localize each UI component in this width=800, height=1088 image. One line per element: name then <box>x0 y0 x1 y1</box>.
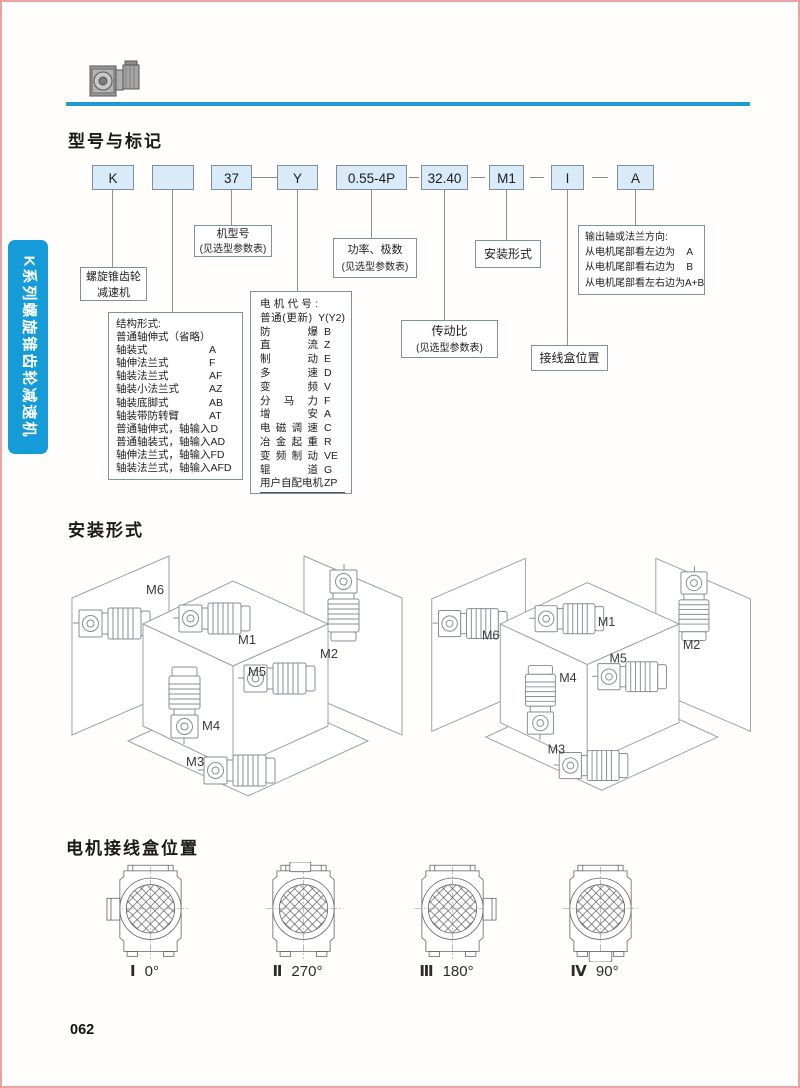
code-box-output-dir: A <box>617 165 654 190</box>
mounting-label-m4: M4 <box>559 671 576 685</box>
annotation-motor-codes: 电机代号: 普通(更新) Y(Y2) 防爆 B 直流 Z <box>250 291 352 494</box>
output-direction-title: 输出轴或法兰方向: <box>585 230 699 245</box>
catalog-page: K系列螺旋锥齿轮减速机 型号与标记 K 37 Y 0.55-4P 32.40 M… <box>0 0 800 1088</box>
annotation-mounting-form: 安装形式 <box>475 240 541 268</box>
motor-code-row: 分马力 F <box>260 395 345 409</box>
annotation-frame-size: 机型号 (见选型参数表) <box>194 225 272 257</box>
terminal-position-label-2: Ⅱ270° <box>253 962 342 980</box>
output-direction-row: 从电机尾部看右边为 B <box>585 260 699 275</box>
motor-rear-view-270deg <box>259 862 348 962</box>
annotation-terminal-position: 接线盒位置 <box>531 345 608 371</box>
motor-code-row: 变频 V <box>260 381 345 395</box>
section-title-terminal-box: 电机接线盒位置 <box>66 834 199 859</box>
series-side-tab: K系列螺旋锥齿轮减速机 <box>8 240 48 454</box>
connector-line <box>444 190 445 320</box>
output-direction-row: 从电机尾部看左右边为 A+B <box>585 276 699 291</box>
mounting-label-m3: M3 <box>186 754 204 769</box>
code-box-terminal-pos: I <box>551 165 584 190</box>
code-box-ratio: 32.40 <box>421 165 468 190</box>
motor-code-rows: 普通(更新) Y(Y2) 防爆 B 直流 Z 制动 E <box>260 312 345 493</box>
gearmotor-photo <box>88 54 144 100</box>
connector-line <box>231 190 232 225</box>
section-title-model-marking: 型号与标记 <box>68 127 163 152</box>
code-dash <box>471 177 485 178</box>
annotation-ratio: 传动比 (见选型参数表) <box>401 320 498 358</box>
terminal-position-label-4: Ⅳ90° <box>550 962 639 980</box>
structure-row: 轴伸法兰式，轴输入 FD <box>116 449 236 462</box>
terminal-position-label-1: Ⅰ0° <box>100 962 189 980</box>
motor-code-row: 普通(更新) Y(Y2) <box>260 312 345 326</box>
structure-row: 普通轴装式，轴输入 AD <box>116 436 236 449</box>
connector-line <box>297 190 298 291</box>
code-box-structure <box>152 165 194 190</box>
mounting-label-m2: M2 <box>683 638 700 652</box>
structure-row: 普通轴伸式，轴输入 D <box>116 423 236 436</box>
mounting-label-m1: M1 <box>238 632 256 647</box>
code-dash <box>409 177 419 178</box>
structure-title: 结构形式: <box>116 318 236 331</box>
annotation-structure-forms: 结构形式: 普通轴伸式（省略） 轴装式 A 轴伸法兰式 F 轴装法兰式 AF <box>108 312 243 480</box>
structure-row: 轴装式 A <box>116 344 236 357</box>
section-title-mounting: 安装形式 <box>68 516 144 541</box>
motor-rear-view-90deg <box>556 862 645 962</box>
annotation-power-poles: 功率、极数 (见选型参数表) <box>333 238 417 278</box>
output-direction-rows: 从电机尾部看左边为 A 从电机尾部看右边为 B 从电机尾部看左右边为 A+B <box>585 245 699 291</box>
code-box-mounting: M1 <box>489 165 524 190</box>
structure-row: 轴装底脚式 AB <box>116 397 236 410</box>
annotation-reducer-type: 螺旋锥齿轮 减速机 <box>80 267 147 301</box>
code-box-power-poles: 0.55-4P <box>336 165 407 190</box>
motor-rear-view-0deg <box>106 862 195 962</box>
mounting-label-m5: M5 <box>248 664 266 679</box>
mounting-diagram-right: M6 M1 M2 M5 M4 M3 <box>424 548 764 816</box>
structure-row: 轴伸法兰式 F <box>116 357 236 370</box>
structure-row: 轴装法兰式，轴输入 AFD <box>116 462 236 475</box>
mounting-diagram-left: M6 M1 M2 M5 M4 M3 <box>64 548 416 820</box>
mounting-label-m6: M6 <box>146 582 164 597</box>
mounting-label-m1: M1 <box>598 615 615 629</box>
motor-code-row: 多速 D <box>260 367 345 381</box>
mounting-label-m2: M2 <box>320 646 338 661</box>
motor-code-row: 增安 A <box>260 408 345 422</box>
motor-code-row: 用户自配电机 ZP <box>260 477 345 493</box>
connector-line <box>635 190 636 225</box>
mounting-label-m3: M3 <box>548 742 565 756</box>
annotation-output-direction: 输出轴或法兰方向: 从电机尾部看左边为 A 从电机尾部看右边为 B 从电机尾部看… <box>578 225 705 295</box>
motor-code-row: 变频制动 VE <box>260 450 345 464</box>
series-side-tab-label: K系列螺旋锥齿轮减速机 <box>8 240 48 453</box>
connector-line <box>567 190 568 345</box>
motor-code-row: 制动 E <box>260 353 345 367</box>
code-dash <box>252 177 277 178</box>
structure-rows: 轴装式 A 轴伸法兰式 F 轴装法兰式 AF 轴装小法兰式 AZ <box>116 344 236 475</box>
mounting-label-m6: M6 <box>482 629 499 643</box>
connector-line <box>506 190 507 240</box>
header-divider <box>66 102 750 106</box>
structure-row: 轴装小法兰式 AZ <box>116 383 236 396</box>
structure-row: 轴装带防转臂 AT <box>116 410 236 423</box>
connector-line <box>112 190 113 267</box>
code-dash <box>592 177 608 178</box>
motor-code-row: 电磁调速 C <box>260 422 345 436</box>
motor-code-row: 直流 Z <box>260 339 345 353</box>
motor-code-row: 辊道 G <box>260 464 345 478</box>
connector-line <box>371 190 372 238</box>
page-number: 062 <box>70 1022 94 1038</box>
structure-row: 轴装法兰式 AF <box>116 370 236 383</box>
motor-codes-title: 电机代号: <box>260 298 318 312</box>
motor-code-row: 防爆 B <box>260 326 345 340</box>
motor-rear-view-180deg <box>408 862 497 962</box>
connector-line <box>172 190 173 312</box>
output-direction-row: 从电机尾部看左边为 A <box>585 245 699 260</box>
code-box-motor-code: Y <box>277 165 318 190</box>
terminal-position-label-3: Ⅲ180° <box>402 962 491 980</box>
code-box-series: K <box>92 165 134 190</box>
code-dash <box>530 177 544 178</box>
motor-code-row: 冶金起重 R <box>260 436 345 450</box>
mounting-label-m4: M4 <box>202 718 220 733</box>
mounting-label-m5: M5 <box>609 652 626 666</box>
structure-subtitle: 普通轴伸式（省略） <box>116 331 236 344</box>
code-box-frame-size: 37 <box>211 165 252 190</box>
